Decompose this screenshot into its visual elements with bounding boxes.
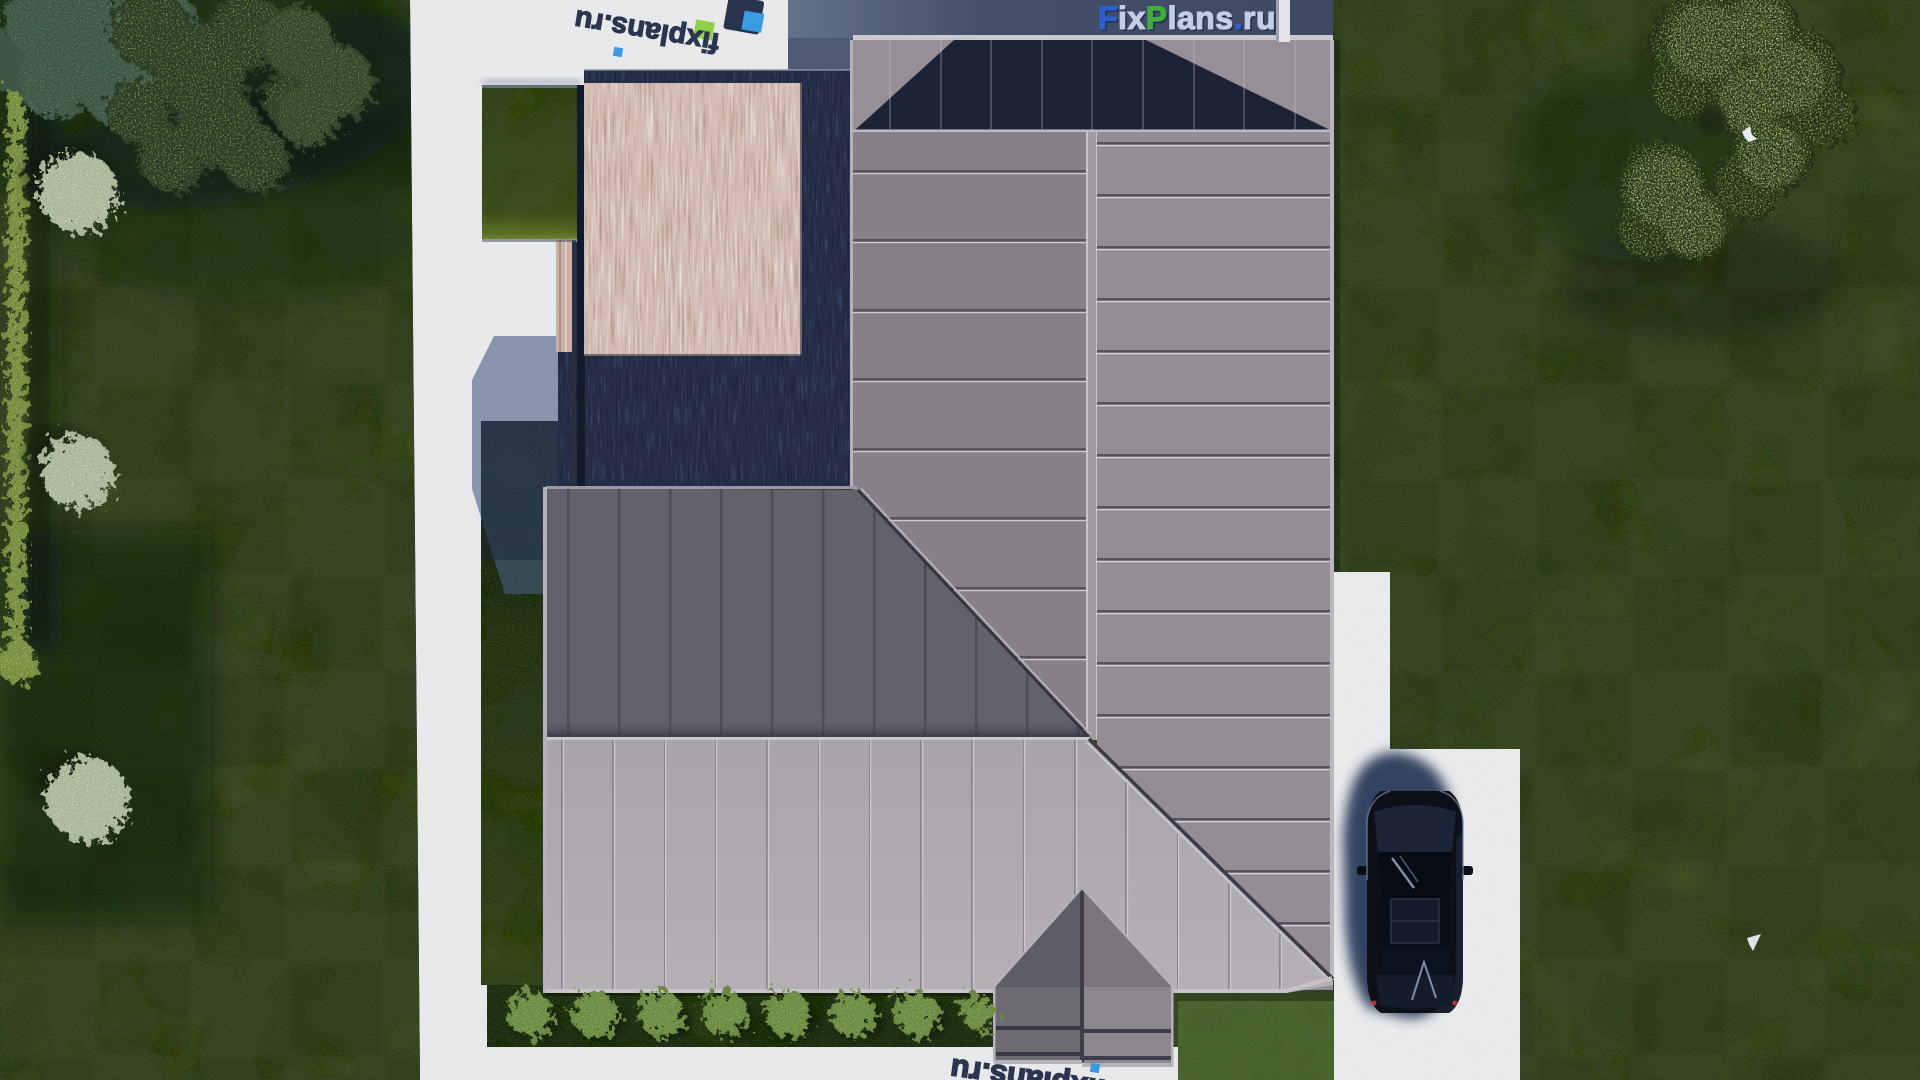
svg-text:FixPlans.ru: FixPlans.ru (1098, 0, 1276, 36)
